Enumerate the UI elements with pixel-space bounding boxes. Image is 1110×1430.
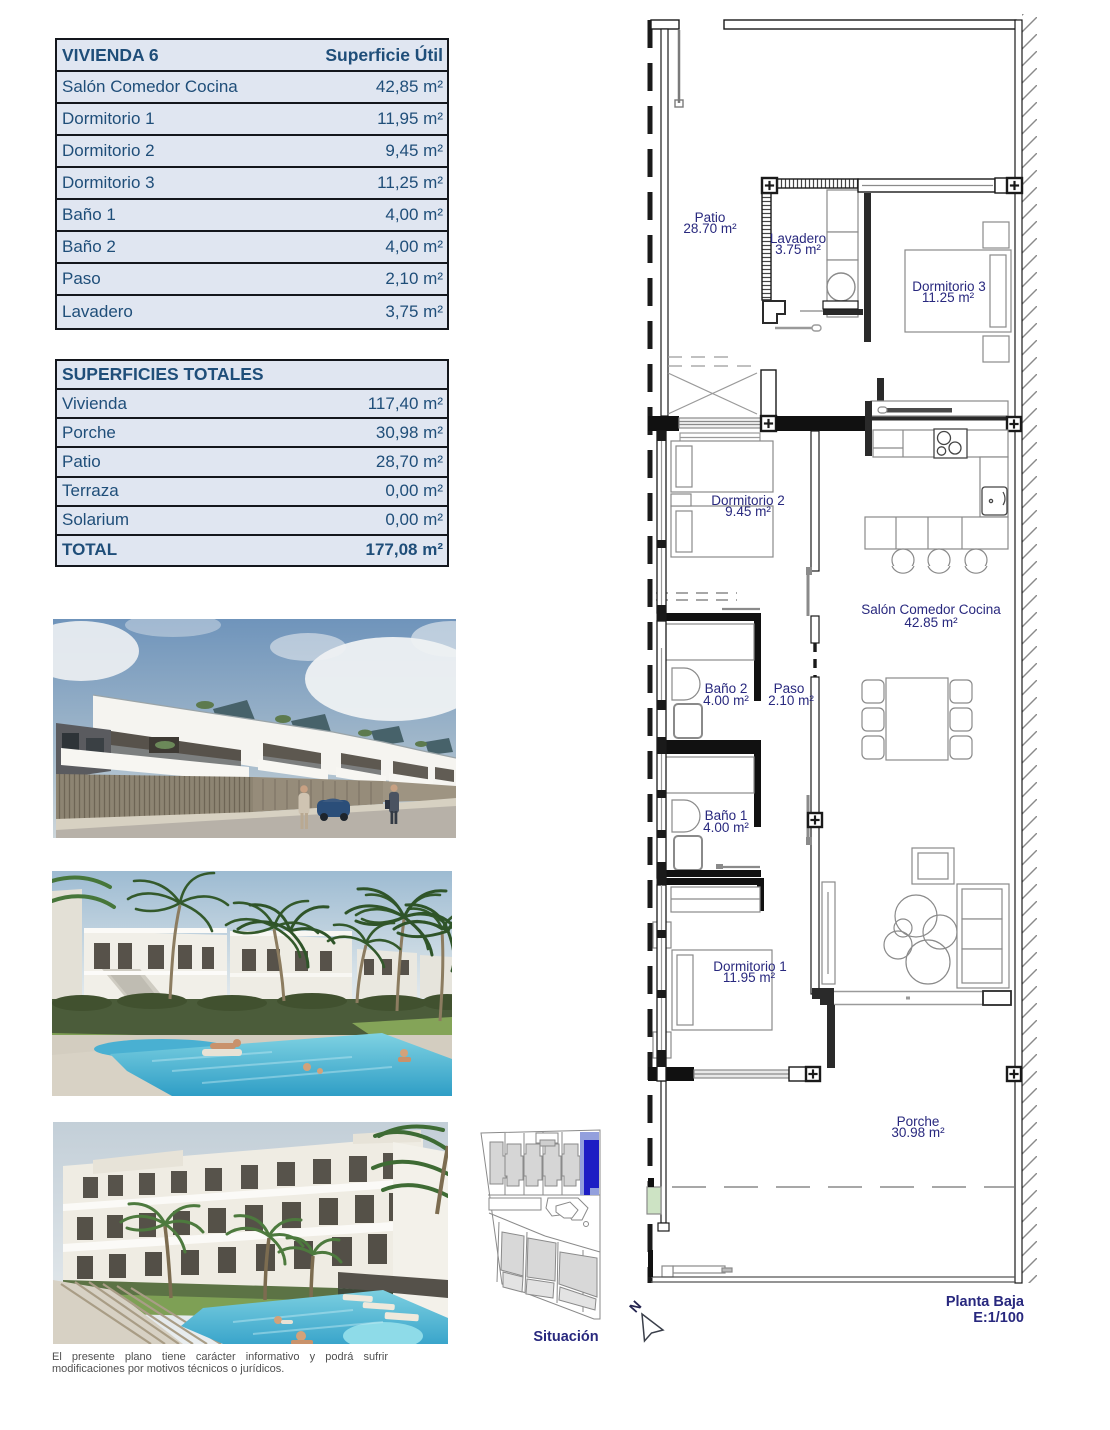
- svg-text:4.00 m²: 4.00 m²: [703, 820, 749, 835]
- svg-text:3.75 m²: 3.75 m²: [775, 242, 821, 257]
- svg-text:9.45 m²: 9.45 m²: [725, 504, 771, 519]
- svg-text:11.25 m²: 11.25 m²: [922, 290, 975, 305]
- svg-text:N: N: [626, 1297, 645, 1315]
- svg-text:2.10 m²: 2.10 m²: [768, 693, 814, 708]
- svg-text:30.98 m²: 30.98 m²: [891, 1125, 945, 1140]
- svg-text:28.70 m²: 28.70 m²: [683, 221, 737, 236]
- svg-text:4.00 m²: 4.00 m²: [703, 693, 749, 708]
- svg-text:42.85 m²: 42.85 m²: [904, 615, 958, 630]
- svg-text:11.95 m²: 11.95 m²: [723, 970, 776, 985]
